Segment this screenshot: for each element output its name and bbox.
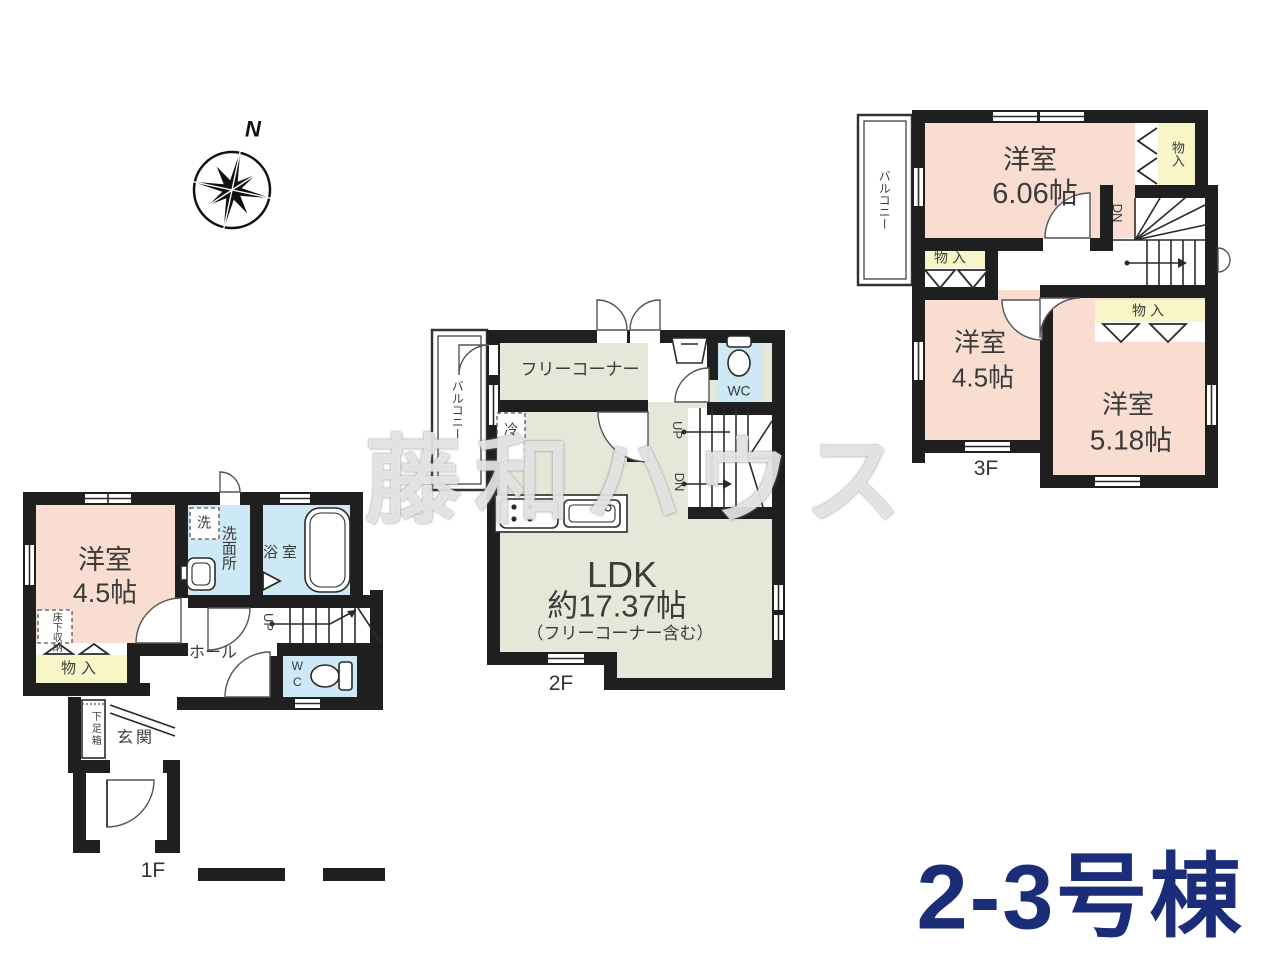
f1-up-label: UP: [261, 613, 275, 631]
f3-western-room1-size: 6.06帖: [992, 179, 1077, 209]
f3-western-room2-size: 4.5帖: [952, 364, 1014, 391]
f3-western-room3-label: 洋室: [1102, 391, 1154, 418]
f1-wc-label: WC: [291, 659, 304, 691]
f2-down-label: DN: [672, 473, 686, 492]
compass-north-label: N: [245, 117, 261, 140]
f2-fridge-label: 冷: [504, 423, 518, 438]
f2-wc-label: WC: [727, 384, 750, 399]
f2-free-corner-label: フリーコーナー: [521, 361, 640, 379]
f2-ldk-note-label: （フリーコーナー含む）: [527, 625, 714, 643]
f3-balcony-label: バルコニー: [878, 170, 891, 230]
f2-ldk-size-label: 約17.37帖: [547, 591, 687, 624]
f3-closet-top-label: 物入: [1170, 141, 1184, 167]
f1-laundry-label: 洗: [197, 516, 211, 531]
f2-floor-label: 2F: [549, 673, 574, 695]
f3-down-label: DN: [1110, 204, 1124, 223]
f3-western-room2-label: 洋室: [954, 329, 1006, 356]
f1-floor-label: 1F: [141, 860, 166, 882]
f1-washroom-label: 洗面所: [220, 526, 236, 571]
f1-western-room-label: 洋室: [78, 546, 132, 574]
f3-closet-right-label: 物入: [1132, 304, 1168, 319]
f1-bathroom-label: 浴室: [263, 545, 301, 561]
watermark: 藤和ハウス: [365, 404, 915, 543]
floor1-stairs-icon: [270, 608, 382, 643]
f3-closet-left-label: 物入: [934, 251, 970, 266]
compass-icon: [187, 120, 282, 235]
floorplan-page: N: [0, 0, 1280, 960]
f3-floor-label: 3F: [974, 458, 999, 480]
f3-western-room3-size: 5.18帖: [1090, 425, 1173, 454]
f1-entrance-label: 玄関: [117, 731, 155, 748]
f1-shoe-box-label: 下足箱: [89, 711, 100, 747]
f2-balcony-label: バルコニー: [451, 380, 464, 440]
f1-underfloor-storage-label: 床下収納: [50, 612, 61, 642]
f1-hall-label: ホール: [189, 646, 237, 663]
f1-western-room-size: 4.5帖: [73, 579, 138, 607]
building-title: 2-3号棟: [917, 823, 1244, 956]
f2-up-label: UP: [670, 421, 684, 439]
f3-western-room1-label: 洋室: [1003, 146, 1057, 174]
f1-closet-label: 物入: [61, 661, 101, 677]
